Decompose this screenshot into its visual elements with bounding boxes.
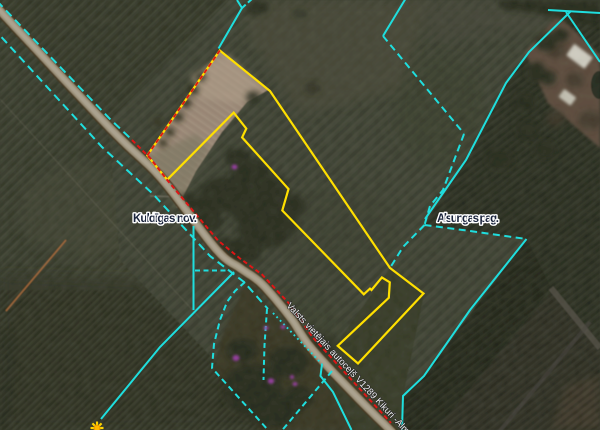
svg-text:Kuldīgas nov.: Kuldīgas nov. <box>133 213 197 225</box>
svg-text:Alsungas pag.: Alsungas pag. <box>437 213 499 225</box>
